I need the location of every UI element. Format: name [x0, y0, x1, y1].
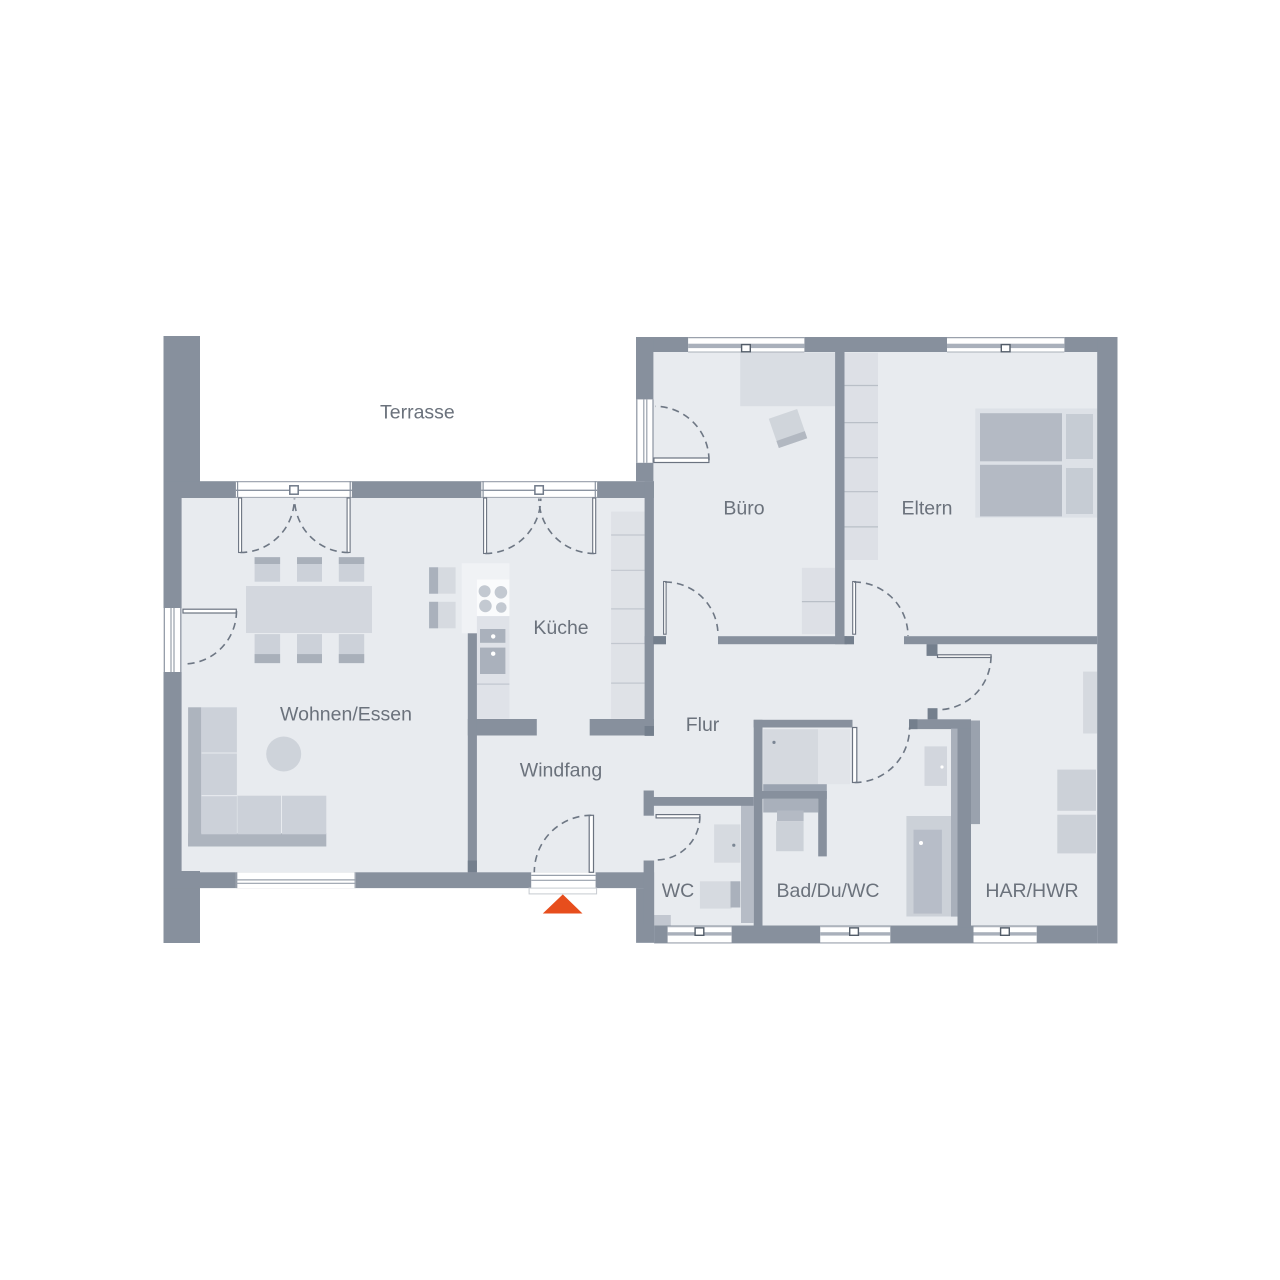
svg-text:Eltern: Eltern	[902, 498, 953, 520]
svg-text:Terrasse: Terrasse	[380, 401, 455, 423]
svg-text:Wohnen/Essen: Wohnen/Essen	[280, 704, 412, 726]
svg-text:Bad/Du/WC: Bad/Du/WC	[777, 880, 880, 902]
svg-text:WC: WC	[662, 880, 695, 902]
svg-text:Büro: Büro	[723, 498, 764, 520]
svg-text:HAR/HWR: HAR/HWR	[985, 880, 1078, 902]
svg-text:Windfang: Windfang	[520, 760, 602, 782]
svg-text:Flur: Flur	[686, 714, 720, 736]
svg-text:Küche: Küche	[533, 617, 588, 639]
